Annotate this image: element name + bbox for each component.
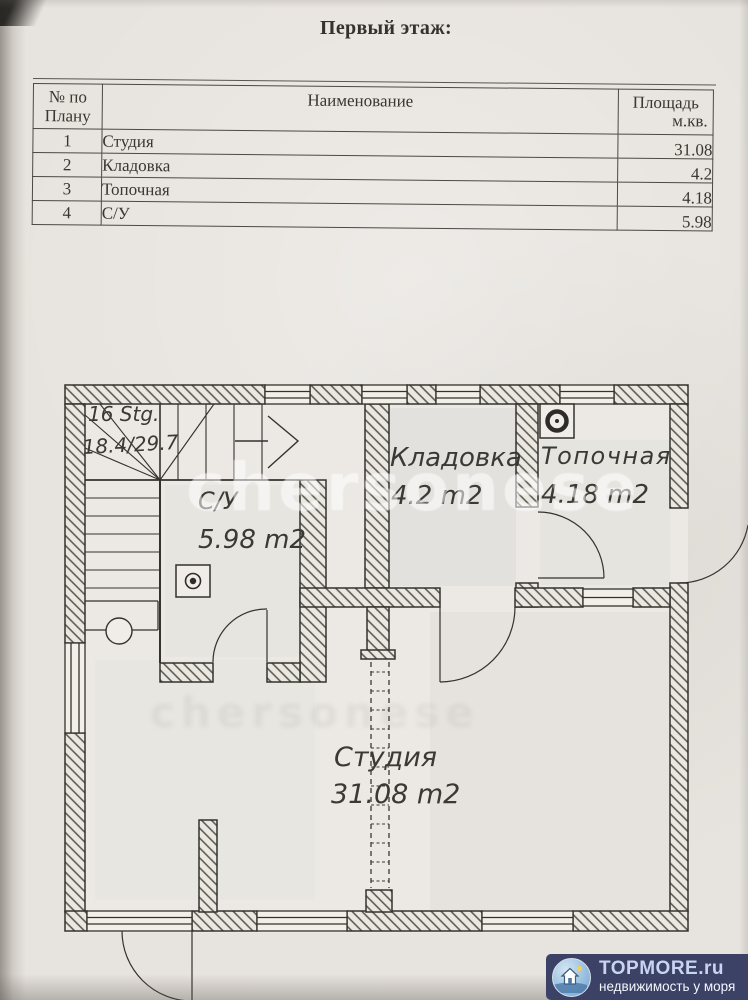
room-area-su: 5.98 m2 <box>198 525 306 555</box>
header-name: Наименование <box>102 84 618 134</box>
area-table-wrap: № поПлану Наименование Площадь м.кв. 1 С… <box>32 83 713 232</box>
cell-no: 2 <box>33 153 102 178</box>
floor-plan: 16 Stg. 18.4/29.7 С/У 5.98 m2 Кладовка 4… <box>0 372 748 1000</box>
bathroom-fixture-icon <box>176 565 210 597</box>
table-header-row: № поПлану Наименование Площадь м.кв. <box>33 84 713 136</box>
room-label-studio: Студия <box>334 742 437 773</box>
cell-no: 3 <box>32 177 101 202</box>
cell-area: 4.2 <box>618 158 713 183</box>
header-area: Площадь м.кв. <box>618 89 713 135</box>
topmore-logo-bar: TOPMORE.ru недвижимость у моря <box>546 954 748 1000</box>
logo-tagline: недвижимость у моря <box>599 980 735 995</box>
cell-area: 31.08 <box>618 134 713 159</box>
stairs-label: 16 Stg. <box>88 402 159 426</box>
column <box>106 618 132 644</box>
table-row: 4 С/У 5.98 <box>32 200 712 231</box>
stairs-dims: 18.4/29.7 <box>82 430 179 459</box>
room-label-su: С/У <box>198 487 239 515</box>
room-area-studio: 31.08 m2 <box>331 779 460 810</box>
document-photo: Первый этаж: № поПлану Наименование Площ… <box>0 0 748 1000</box>
area-table: № поПлану Наименование Площадь м.кв. 1 С… <box>32 83 714 232</box>
cell-no: 4 <box>32 200 101 225</box>
room-area-kladovka: 4.2 m2 <box>391 481 482 511</box>
photo-shadow-top <box>0 0 748 8</box>
sun-icon <box>577 966 582 971</box>
topmore-logo-icon <box>552 958 591 997</box>
boiler-icon <box>540 404 574 438</box>
cell-area: 5.98 <box>617 206 712 231</box>
cell-area: 4.18 <box>617 182 712 207</box>
room-label-kladovka: Кладовка <box>390 443 522 473</box>
page-title: Первый этаж: <box>0 17 748 40</box>
cell-no: 1 <box>33 129 102 154</box>
header-plan-no: № поПлану <box>33 84 102 130</box>
logo-brand: TOPMORE.ru <box>599 959 735 980</box>
door-exterior-right <box>679 525 748 583</box>
room-label-topochnaya: Топочная <box>541 442 672 470</box>
door-exterior-bottom <box>122 931 192 1000</box>
room-area-topochnaya: 4.18 m2 <box>541 480 649 510</box>
cell-name: С/У <box>101 201 617 230</box>
